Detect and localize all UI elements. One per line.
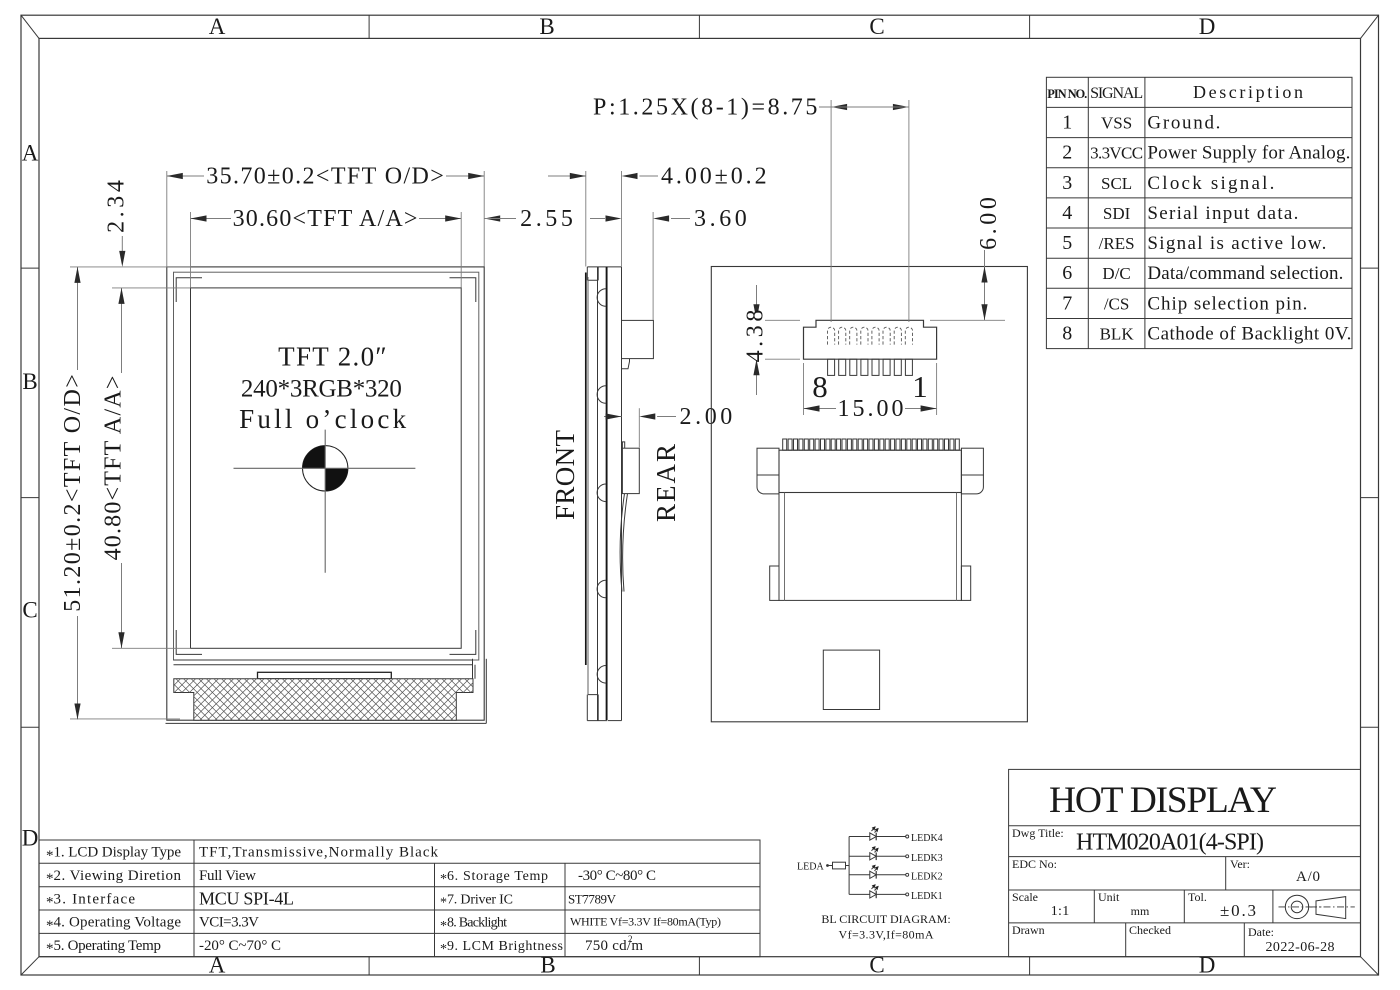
svg-text:Ground.: Ground. — [1147, 113, 1220, 134]
svg-text:2022-06-28: 2022-06-28 — [1266, 940, 1335, 955]
svg-text:A/0: A/0 — [1296, 869, 1320, 885]
svg-text:6.00: 6.00 — [976, 197, 1002, 250]
svg-text:*: * — [440, 919, 447, 934]
svg-text:Date:: Date: — [1248, 925, 1274, 939]
svg-text:8. Backlight: 8. Backlight — [447, 916, 507, 931]
svg-text:Full View: Full View — [199, 868, 256, 884]
svg-text:30.60<TFT A/A>: 30.60<TFT A/A> — [233, 206, 418, 232]
svg-text:WHITE Vf=3.3V If=80mA(Typ): WHITE Vf=3.3V If=80mA(Typ) — [570, 915, 721, 929]
svg-text:-20° C~70° C: -20° C~70° C — [199, 938, 281, 954]
svg-text:HOT DISPLAY: HOT DISPLAY — [1049, 780, 1277, 821]
svg-text:4: 4 — [1062, 202, 1072, 224]
svg-text:C: C — [22, 598, 37, 623]
svg-text:D: D — [1199, 14, 1216, 39]
svg-text:15.00: 15.00 — [838, 396, 904, 422]
svg-text:1: 1 — [1062, 112, 1072, 134]
svg-text:D: D — [22, 826, 39, 851]
svg-text:2. Viewing Diretion: 2. Viewing Diretion — [54, 868, 182, 884]
svg-text:*: * — [46, 848, 54, 864]
svg-text:5. Operating Temp: 5. Operating Temp — [54, 938, 162, 954]
svg-text:VSS: VSS — [1101, 114, 1132, 133]
svg-text:SDI: SDI — [1103, 204, 1131, 223]
svg-text:40.80<TFT A/A>: 40.80<TFT A/A> — [101, 376, 127, 561]
svg-text:C: C — [869, 953, 884, 978]
svg-text:7: 7 — [1062, 292, 1072, 314]
svg-text:C: C — [869, 14, 884, 39]
svg-text:LEDK2: LEDK2 — [911, 871, 943, 882]
svg-text:*: * — [440, 942, 447, 957]
svg-text:Serial input data.: Serial input data. — [1147, 203, 1298, 224]
svg-text:*: * — [46, 918, 54, 934]
svg-text:4.38: 4.38 — [743, 310, 769, 363]
svg-text:Description: Description — [1193, 82, 1303, 102]
svg-text:LEDK4: LEDK4 — [911, 833, 943, 844]
svg-text:*: * — [440, 872, 447, 887]
svg-text:Cathode of Backlight 0V.: Cathode of Backlight 0V. — [1147, 324, 1351, 345]
svg-text:Dwg Title:: Dwg Title: — [1012, 826, 1064, 840]
svg-text:3.3VCC: 3.3VCC — [1090, 144, 1143, 163]
svg-text:2.55: 2.55 — [520, 206, 573, 232]
svg-text:51.20±0.2<TFT O/D>: 51.20±0.2<TFT O/D> — [60, 374, 86, 612]
svg-text:B: B — [22, 369, 37, 394]
svg-text:FRONT: FRONT — [550, 430, 580, 521]
svg-text:VCI=3.3V: VCI=3.3V — [199, 915, 259, 931]
svg-text:3. Interface: 3. Interface — [54, 891, 136, 907]
svg-text:*: * — [440, 896, 447, 911]
svg-text:2.00: 2.00 — [680, 404, 733, 430]
svg-text:1: 1 — [912, 369, 928, 404]
svg-text:D/C: D/C — [1102, 264, 1130, 283]
svg-text:1:1: 1:1 — [1051, 904, 1070, 919]
svg-text:MCU SPI-4L: MCU SPI-4L — [199, 888, 294, 908]
svg-text:Chip selection pin.: Chip selection pin. — [1147, 293, 1307, 314]
svg-text:2.34: 2.34 — [104, 180, 130, 233]
svg-text:9. LCM Brightness: 9. LCM Brightness — [447, 939, 563, 954]
svg-text:Clock signal.: Clock signal. — [1147, 173, 1274, 194]
svg-text:A: A — [22, 141, 39, 166]
svg-text:±0.3: ±0.3 — [1220, 901, 1256, 920]
svg-text:Ver:: Ver: — [1230, 857, 1250, 871]
svg-text:LEDK1: LEDK1 — [911, 891, 943, 902]
svg-text:SCL: SCL — [1101, 174, 1132, 193]
svg-text:LEDK3: LEDK3 — [911, 853, 943, 864]
svg-text:7. Driver IC: 7. Driver IC — [447, 892, 513, 907]
svg-text:Vf=3.3V,If=80mA: Vf=3.3V,If=80mA — [839, 928, 934, 942]
svg-text:HTM020A01(4-SPI): HTM020A01(4-SPI) — [1076, 830, 1264, 856]
svg-text:*: * — [46, 895, 54, 911]
svg-text:SIGNAL: SIGNAL — [1090, 85, 1143, 102]
svg-text:Full o’clock: Full o’clock — [239, 404, 407, 434]
svg-text:/CS: /CS — [1104, 294, 1130, 313]
svg-text:240*3RGB*320: 240*3RGB*320 — [241, 375, 402, 402]
svg-text:*: * — [46, 941, 54, 957]
svg-text:REAR: REAR — [651, 444, 681, 522]
svg-text:6: 6 — [1062, 262, 1072, 284]
svg-text:TFT,Transmissive,Normally Blac: TFT,Transmissive,Normally Black — [199, 845, 439, 861]
svg-text:8: 8 — [1062, 323, 1072, 345]
svg-text:4.00±0.2: 4.00±0.2 — [661, 164, 767, 190]
svg-text:PIN NO.: PIN NO. — [1047, 87, 1087, 101]
svg-text:A: A — [209, 14, 226, 39]
svg-text:Power Supply for Analog.: Power Supply for Analog. — [1147, 143, 1350, 164]
svg-text:4. Operating Voltage: 4. Operating Voltage — [54, 915, 182, 931]
svg-text:LEDA: LEDA — [797, 862, 824, 873]
svg-text:/RES: /RES — [1099, 234, 1135, 253]
svg-text:Data/command selection.: Data/command selection. — [1147, 263, 1343, 284]
svg-text:3: 3 — [1062, 172, 1072, 194]
svg-text:Tol.: Tol. — [1188, 890, 1207, 904]
svg-text:5: 5 — [1062, 232, 1072, 254]
svg-text:8: 8 — [812, 369, 828, 404]
svg-text:*: * — [46, 871, 54, 887]
svg-text:Scale: Scale — [1012, 890, 1038, 904]
svg-text:TFT 2.0″: TFT 2.0″ — [278, 341, 387, 371]
svg-text:2: 2 — [628, 934, 633, 944]
svg-text:Checked: Checked — [1129, 923, 1171, 937]
svg-text:1. LCD Display Type: 1. LCD Display Type — [54, 845, 182, 861]
svg-text:3.60: 3.60 — [694, 206, 747, 232]
svg-text:2: 2 — [1062, 142, 1072, 164]
svg-text:-30° C~80° C: -30° C~80° C — [578, 868, 656, 884]
svg-text:750 cd/m: 750 cd/m — [585, 938, 643, 954]
svg-text:Signal is active low.: Signal is active low. — [1147, 233, 1326, 254]
svg-text:mm: mm — [1131, 904, 1150, 918]
svg-text:P:1.25X(8-1)=8.75: P:1.25X(8-1)=8.75 — [593, 95, 817, 121]
svg-text:BL CIRCUIT DIAGRAM:: BL CIRCUIT DIAGRAM: — [821, 912, 950, 926]
svg-text:35.70±0.2<TFT O/D>: 35.70±0.2<TFT O/D> — [206, 164, 444, 190]
svg-text:Drawn: Drawn — [1012, 923, 1045, 937]
svg-text:ST7789V: ST7789V — [568, 891, 617, 906]
svg-text:BLK: BLK — [1100, 325, 1135, 344]
svg-text:EDC No:: EDC No: — [1012, 857, 1057, 871]
svg-text:Unit: Unit — [1098, 890, 1120, 904]
svg-text:B: B — [539, 14, 554, 39]
svg-text:6. Storage Temp: 6. Storage Temp — [447, 869, 548, 884]
